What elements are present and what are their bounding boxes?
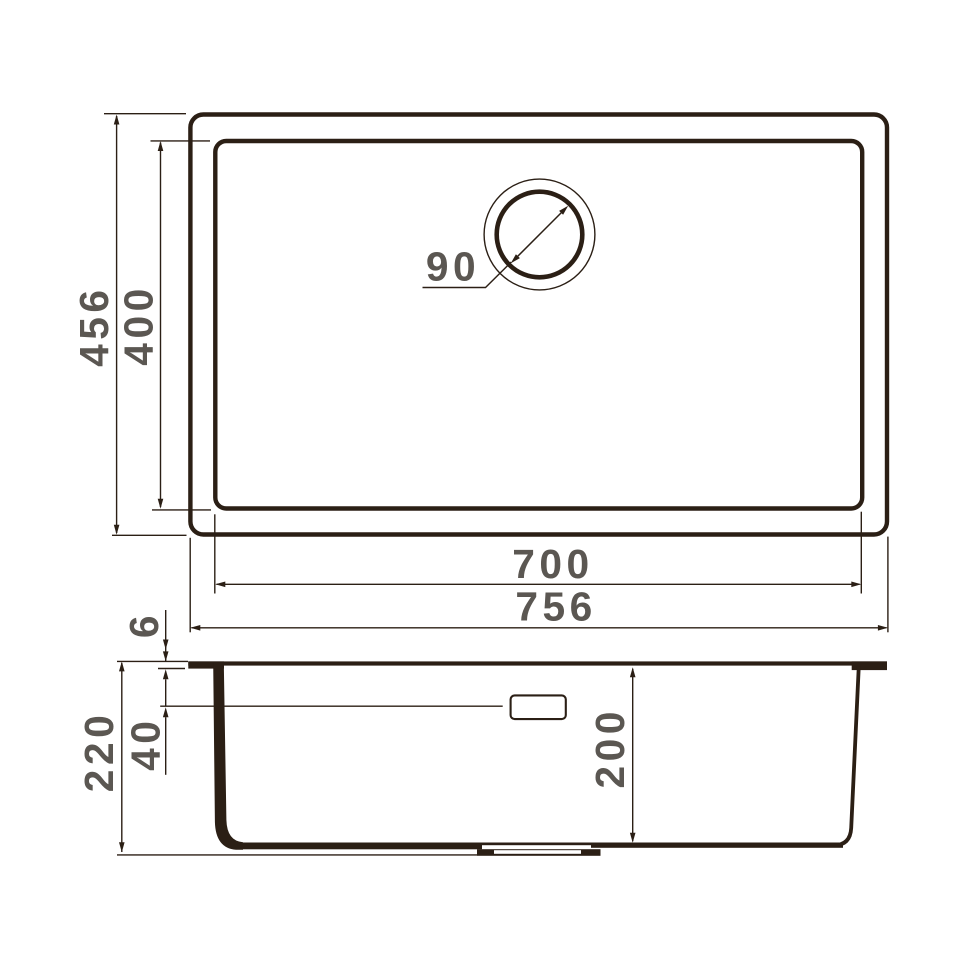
svg-text:400: 400 [116, 284, 162, 365]
svg-text:6: 6 [121, 611, 167, 638]
svg-text:220: 220 [76, 711, 122, 792]
svg-text:700: 700 [512, 541, 593, 587]
svg-text:90: 90 [426, 243, 480, 289]
svg-text:40: 40 [122, 717, 168, 771]
svg-text:456: 456 [71, 286, 117, 367]
svg-text:200: 200 [587, 707, 633, 788]
svg-text:756: 756 [515, 583, 596, 629]
